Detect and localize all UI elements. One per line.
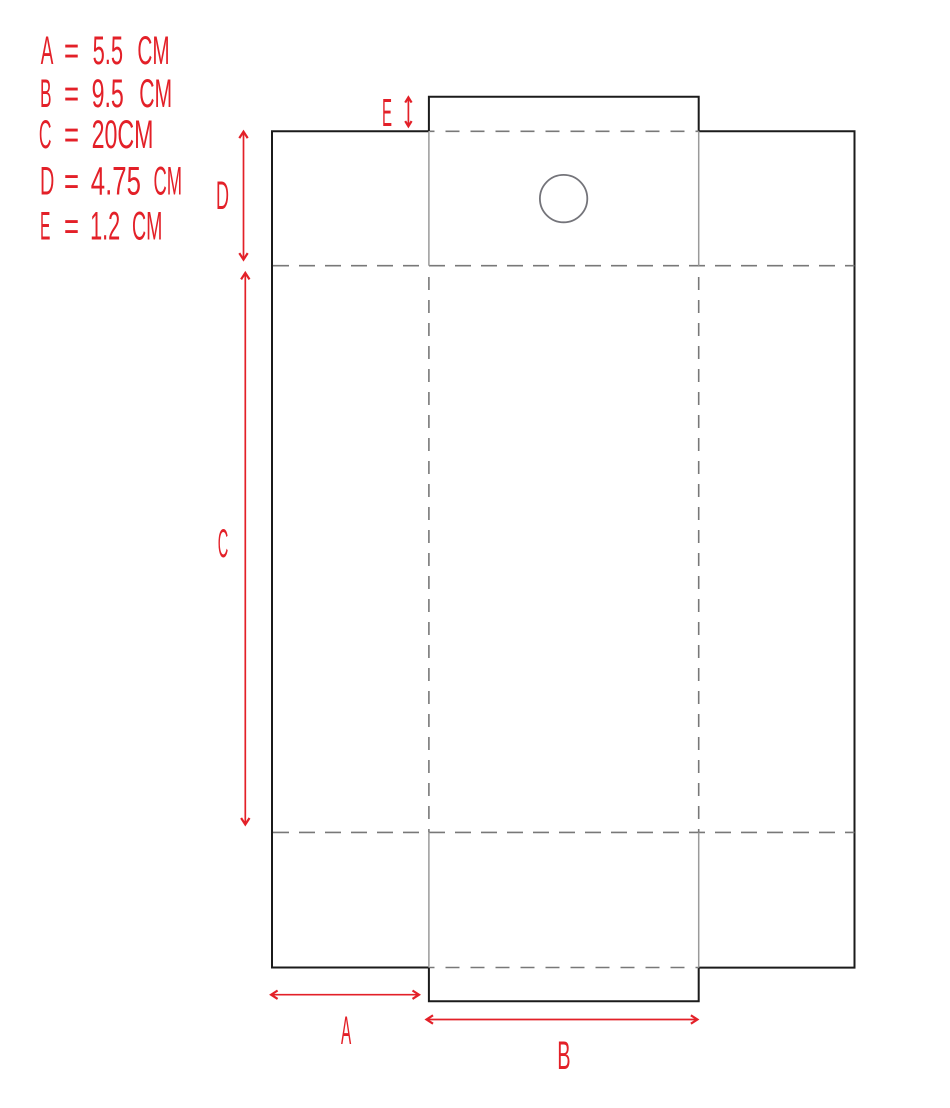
svg-text:=: =: [64, 160, 79, 204]
svg-text:9.5: 9.5: [92, 72, 124, 116]
svg-text:5.5: 5.5: [93, 29, 123, 73]
svg-text:A: A: [41, 29, 54, 73]
svg-text:=: =: [64, 204, 79, 248]
svg-text:B: B: [557, 1034, 570, 1078]
svg-text:4.75: 4.75: [91, 160, 141, 204]
svg-text:A: A: [341, 1009, 351, 1053]
svg-text:D: D: [216, 174, 229, 218]
svg-text:B: B: [40, 72, 52, 116]
svg-text:=: =: [64, 29, 79, 73]
svg-text:20CM: 20CM: [92, 113, 154, 157]
svg-text:D: D: [40, 160, 54, 204]
svg-text:=: =: [64, 113, 79, 157]
svg-text:E: E: [40, 204, 50, 248]
svg-text:CM: CM: [132, 204, 162, 248]
svg-text:1.2: 1.2: [90, 204, 120, 248]
svg-text:=: =: [64, 72, 79, 116]
svg-text:C: C: [39, 113, 52, 157]
svg-text:CM: CM: [137, 29, 169, 73]
svg-text:C: C: [218, 522, 229, 566]
svg-text:E: E: [382, 92, 392, 135]
svg-text:CM: CM: [139, 72, 172, 116]
svg-text:CM: CM: [154, 160, 183, 204]
